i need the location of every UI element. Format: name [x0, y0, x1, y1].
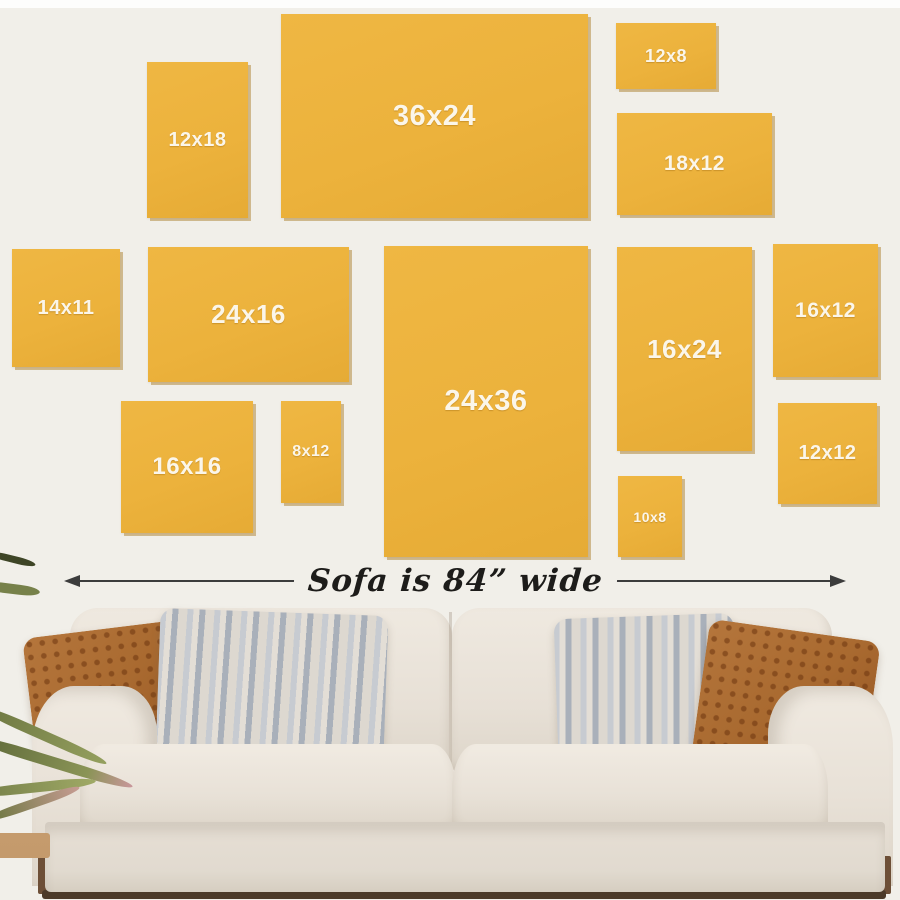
canvas-16x12: 16x12: [773, 244, 878, 377]
canvas-36x24: 36x24: [281, 14, 588, 218]
canvas-size-label: 16x16: [152, 453, 221, 481]
size-guide-scene: 12x18 36x24 12x8 18x12 14x11 24x16 24x36…: [0, 0, 900, 900]
canvas-size-label: 18x12: [664, 152, 725, 176]
canvas-16x16: 16x16: [121, 401, 253, 533]
sofa-back-seam: [449, 612, 452, 762]
sofa-width-label: Sofa is 84” wide: [292, 563, 617, 599]
canvas-size-label: 14x11: [37, 297, 94, 320]
canvas-size-label: 10x8: [633, 509, 666, 525]
sofa-width-annotation: Sofa is 84” wide: [64, 563, 846, 599]
canvas-size-label: 16x12: [795, 299, 856, 323]
canvas-size-label: 16x24: [647, 334, 722, 365]
canvas-12x8: 12x8: [616, 23, 716, 89]
pillow-striped-left: [156, 608, 389, 763]
canvas-10x8: 10x8: [618, 476, 682, 557]
plant-pot: [0, 833, 50, 858]
canvas-size-label: 12x12: [798, 442, 856, 465]
canvas-size-label: 24x16: [211, 299, 286, 330]
canvas-24x36: 24x36: [384, 246, 588, 557]
canvas-size-label: 12x8: [645, 46, 687, 67]
canvas-12x18: 12x18: [147, 62, 248, 218]
canvas-24x16: 24x16: [148, 247, 349, 382]
canvas-size-label: 36x24: [393, 100, 476, 133]
plant-leaf-icon: [0, 551, 36, 568]
sofa-base: [45, 822, 885, 892]
arrow-right-icon: [830, 575, 846, 587]
canvas-14x11: 14x11: [12, 249, 120, 367]
canvas-size-label: 8x12: [292, 443, 330, 461]
canvas-8x12: 8x12: [281, 401, 341, 503]
canvas-12x12: 12x12: [778, 403, 877, 504]
canvas-size-label: 24x36: [444, 385, 527, 418]
arrow-left-icon: [64, 575, 80, 587]
canvas-size-label: 12x18: [168, 129, 226, 152]
plant-leaf-icon: [0, 581, 40, 598]
top-strip: [0, 0, 900, 8]
canvas-18x12: 18x12: [617, 113, 772, 215]
canvas-16x24: 16x24: [617, 247, 752, 451]
